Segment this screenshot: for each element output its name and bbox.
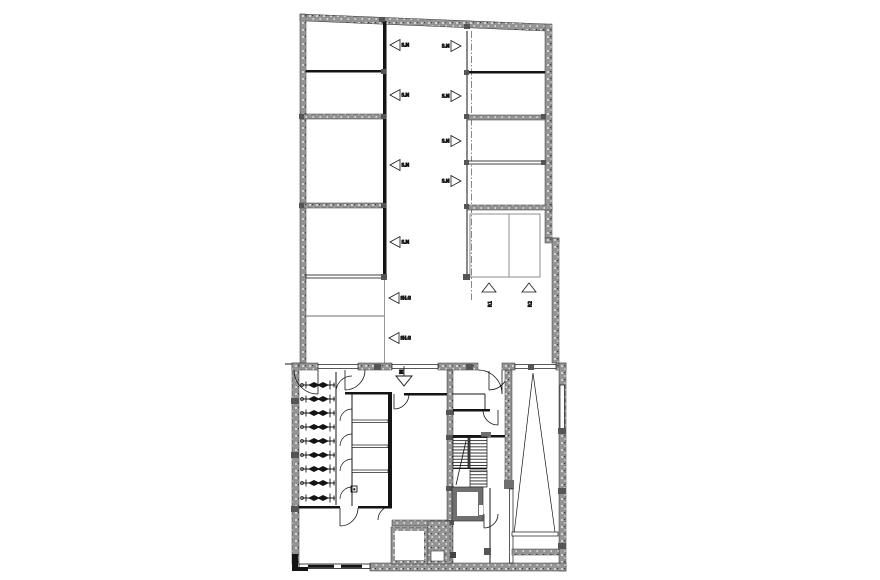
wall-segment xyxy=(300,14,306,363)
marker-label: S.M xyxy=(442,44,450,49)
service-rooms xyxy=(391,521,450,564)
structural-column xyxy=(504,480,514,489)
structural-column xyxy=(484,548,491,555)
marker-label: SH.G xyxy=(401,336,411,341)
partition-wall xyxy=(453,409,490,412)
wall-segment xyxy=(502,363,515,370)
partition-wall xyxy=(467,205,552,210)
partition-wall xyxy=(306,70,386,73)
wall-segment xyxy=(292,363,299,564)
partition-wall xyxy=(299,506,340,509)
marker-label: P.2 xyxy=(528,301,533,307)
ramp-edge-line xyxy=(512,532,558,536)
wall-segment xyxy=(292,567,308,571)
partition-wall xyxy=(404,393,447,396)
wall-segment xyxy=(308,565,334,568)
marker-label: S.M xyxy=(402,163,410,168)
window-line xyxy=(560,385,565,430)
marker-label: S.M xyxy=(442,179,450,184)
room-interior xyxy=(431,551,444,561)
stall-divider xyxy=(352,420,388,423)
entrance-label: IN xyxy=(399,370,404,374)
marker-label: S.M xyxy=(442,94,450,99)
structural-column xyxy=(450,552,456,558)
stall-divider xyxy=(352,470,388,473)
window-line xyxy=(318,365,358,369)
wall-segment xyxy=(341,565,362,568)
partition-wall xyxy=(300,114,386,119)
marker-label: SH.G xyxy=(401,296,411,301)
partition-wall xyxy=(300,203,386,208)
window-line xyxy=(306,275,384,278)
marker-label: S.M xyxy=(402,43,410,48)
window-line xyxy=(467,161,545,164)
drawing-background xyxy=(0,0,880,580)
floor-plan-drawing: S.M S.M S.M S.M SH.G SH.G xyxy=(0,0,880,580)
structural-column xyxy=(481,432,491,437)
fixture-dot xyxy=(353,488,355,490)
stair-flight xyxy=(470,437,487,468)
marker-label: S.M xyxy=(402,240,410,245)
wall-segment xyxy=(505,370,512,482)
room-interior xyxy=(395,531,424,560)
elevator-cab xyxy=(457,492,478,516)
wall-segment xyxy=(552,238,559,363)
marker-label: P.1 xyxy=(488,301,493,307)
marker-label: S.M xyxy=(402,93,410,98)
partition-wall xyxy=(467,71,545,74)
partition-wall xyxy=(388,392,392,506)
corridor-wall xyxy=(383,21,387,280)
window-line xyxy=(515,365,556,369)
floorplan-canvas: S.M S.M S.M S.M SH.G SH.G xyxy=(0,0,880,580)
marker-label: S.M xyxy=(442,139,450,144)
stair-flight xyxy=(470,470,487,487)
elevator-door-gap xyxy=(479,505,483,515)
window-line xyxy=(392,365,438,369)
ramp-grating xyxy=(512,549,559,555)
stall-divider xyxy=(352,445,388,448)
partition-wall xyxy=(467,115,545,120)
